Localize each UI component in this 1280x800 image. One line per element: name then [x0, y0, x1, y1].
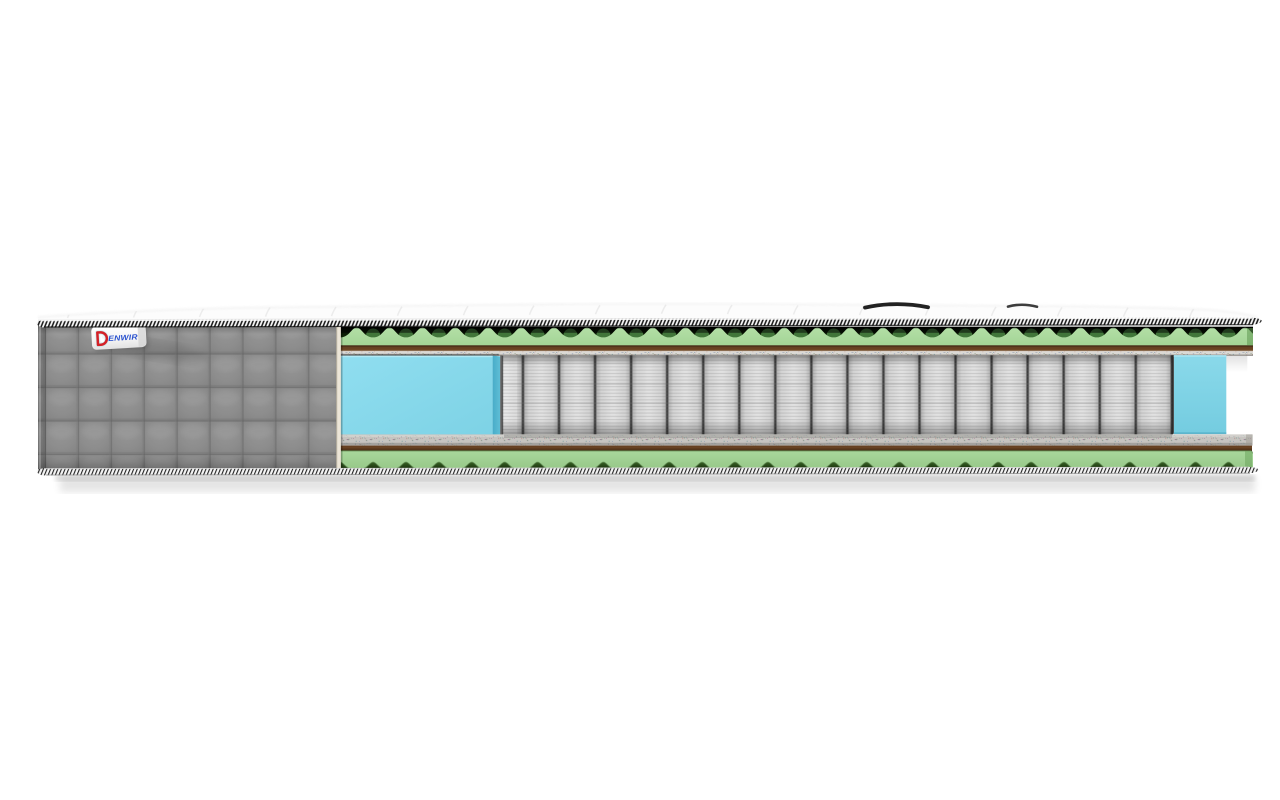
svg-text:ENWIR: ENWIR	[108, 332, 138, 343]
